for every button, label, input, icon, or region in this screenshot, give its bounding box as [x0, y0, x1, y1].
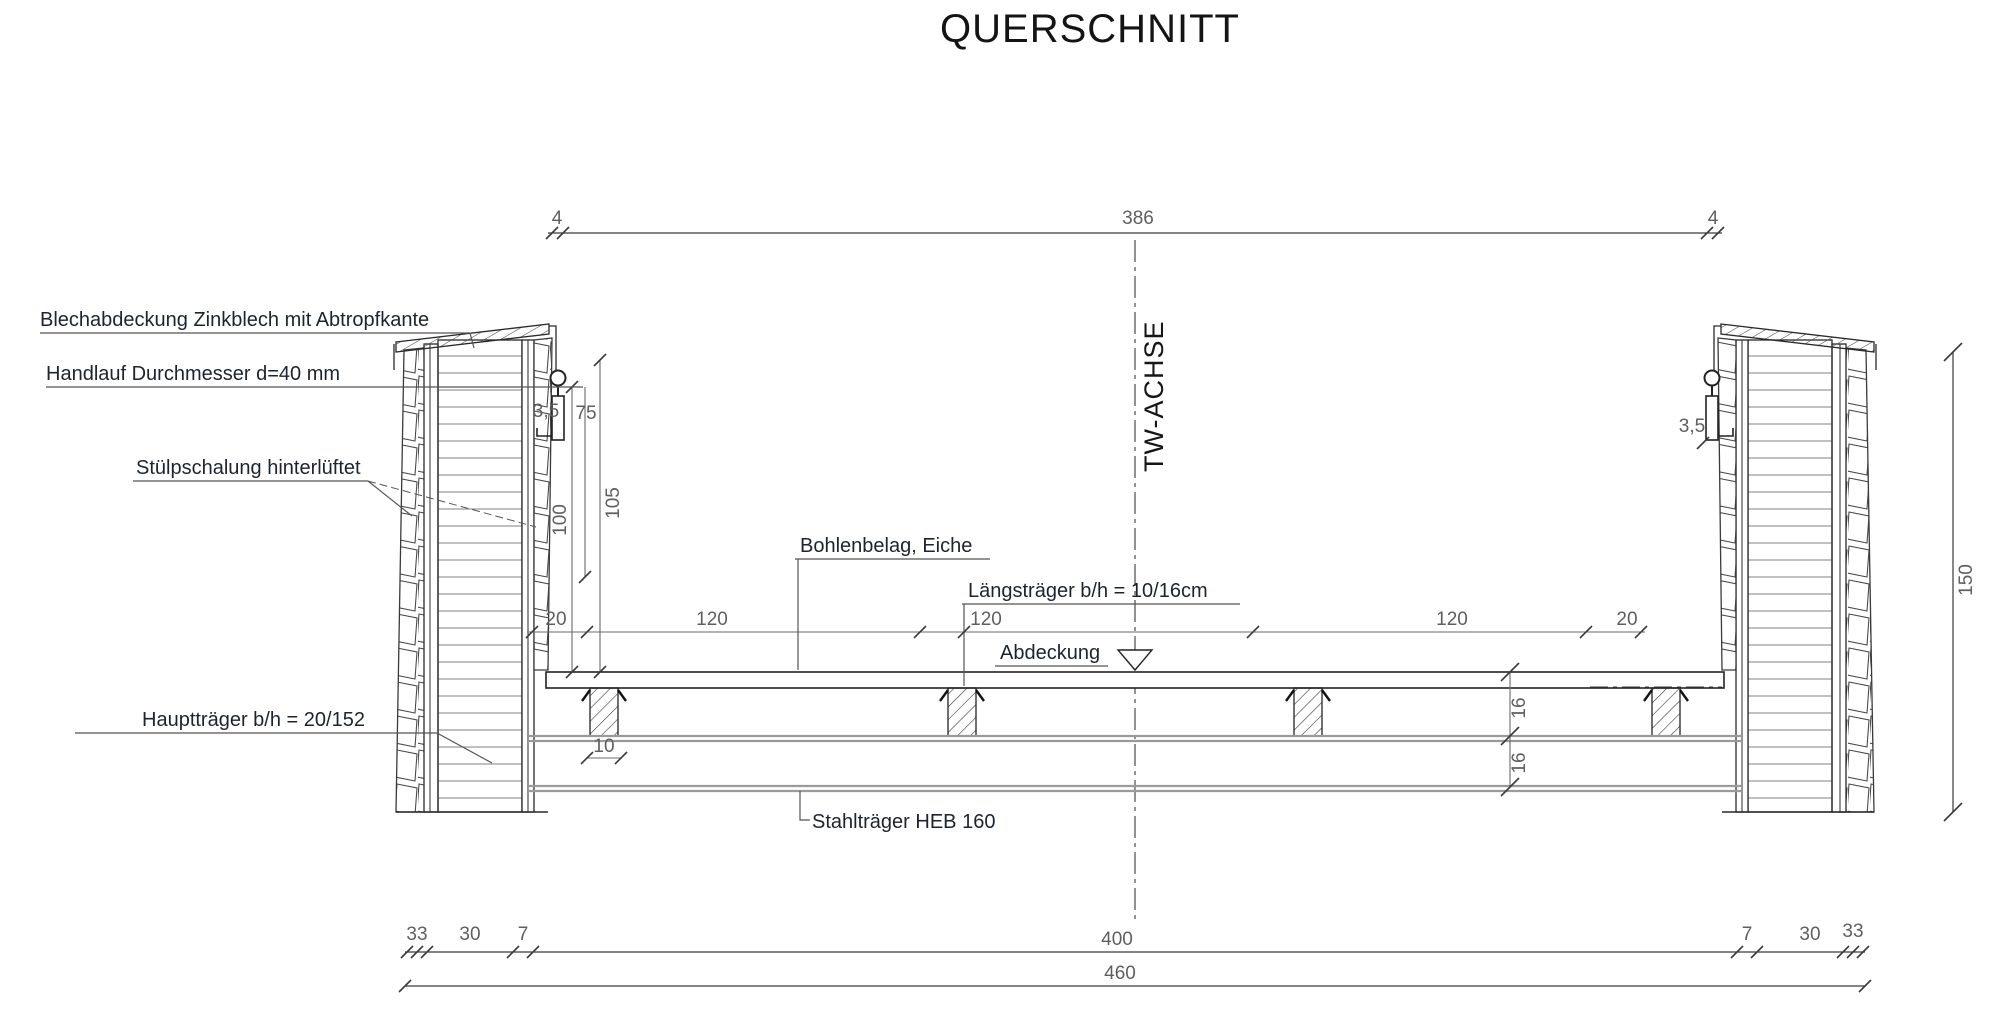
- deck-plank-bohlenbelag: [546, 672, 1724, 688]
- drawing-canvas: QUERSCHNITT TW-ACHSE 4 386 4: [0, 0, 2000, 1014]
- label-stuelpschalung: Stülpschalung hinterlüftet: [136, 457, 361, 479]
- bottom-dimension-chain: 33 30 7 400 7 30 33 460: [399, 921, 1871, 992]
- left-tower-core-haupttraeger: [438, 340, 522, 812]
- right-handrail-post: [1706, 396, 1718, 440]
- label-blechabdeckung: Blechabdeckung Zinkblech mit Abtropfkant…: [40, 309, 429, 331]
- cross-section-drawing: QUERSCHNITT TW-ACHSE 4 386 4: [0, 0, 2000, 1014]
- label-bohlenbelag: Bohlenbelag, Eiche: [800, 535, 972, 557]
- top-dimension: 4 386 4: [546, 208, 1724, 239]
- dim-top-span: 386: [1122, 208, 1154, 229]
- dim-bottom-400: 400: [1101, 929, 1133, 950]
- dim-150: 150: [1956, 564, 1977, 596]
- right-tower: [1705, 324, 1877, 812]
- dim-deck-3: 120: [1436, 609, 1468, 630]
- annotations: Blechabdeckung Zinkblech mit Abtropfkant…: [40, 309, 1240, 833]
- right-tower-outer-post: [1832, 344, 1846, 812]
- dim-bottom-7-left: 7: [518, 924, 529, 945]
- laengstraeger-joist: [1294, 688, 1322, 736]
- dim-deck-4: 20: [1616, 609, 1637, 630]
- label-laengstraeger: Längsträger b/h = 10/16cm: [968, 580, 1208, 602]
- dim-bottom-30-right: 30: [1799, 924, 1820, 945]
- dim-total-460: 460: [1104, 963, 1136, 984]
- dim-105: 105: [603, 487, 624, 519]
- dim-bottom-30-left: 30: [459, 924, 480, 945]
- axis-label: TW-ACHSE: [1139, 320, 1169, 472]
- dim-10: 10: [593, 736, 614, 757]
- label-haupttraeger: Hauptträger b/h = 20/152: [142, 709, 365, 731]
- dim-deck-2: 120: [970, 609, 1002, 630]
- dim-16-lower: 16: [1509, 752, 1530, 773]
- dim-bottom-33-right: 33: [1842, 921, 1863, 942]
- dim-rail-offset-left: 3,5: [533, 401, 559, 422]
- dim-16-upper: 16: [1509, 697, 1530, 718]
- right-tower-inner-cladding: [1718, 338, 1736, 670]
- dim-bottom-7-right: 7: [1742, 924, 1753, 945]
- right-handrail-circle: [1705, 371, 1720, 386]
- dim-deck-0: 20: [545, 609, 566, 630]
- leader-stahltraeger: [800, 791, 810, 820]
- level-triangle-icon: [1118, 650, 1152, 670]
- left-handrail-circle: [551, 371, 566, 386]
- dim-75: 75: [575, 403, 596, 424]
- label-abdeckung: Abdeckung: [1000, 642, 1100, 664]
- drawing-title: QUERSCHNITT: [940, 7, 1240, 51]
- left-tower: [394, 324, 566, 812]
- dim-top-right: 4: [1708, 208, 1719, 229]
- laengstraeger-joist: [1652, 688, 1680, 736]
- label-stahltraeger: Stahlträger HEB 160: [812, 811, 995, 833]
- dim-rail-offset-right: 3,5: [1679, 416, 1705, 437]
- left-tower-outer-post: [424, 344, 438, 812]
- dim-top-left: 4: [552, 208, 563, 229]
- label-handlauf: Handlauf Durchmesser d=40 mm: [46, 363, 340, 385]
- dim-100: 100: [550, 504, 571, 536]
- deck-dimension-chain: 20 120 120 120 20: [526, 609, 1647, 638]
- right-tower-core-haupttraeger: [1748, 340, 1832, 812]
- dim-deck-1: 120: [696, 609, 728, 630]
- laengstraeger-joist: [590, 688, 618, 736]
- laengstraeger-joist: [948, 688, 976, 736]
- dim-bottom-33-left: 33: [406, 924, 427, 945]
